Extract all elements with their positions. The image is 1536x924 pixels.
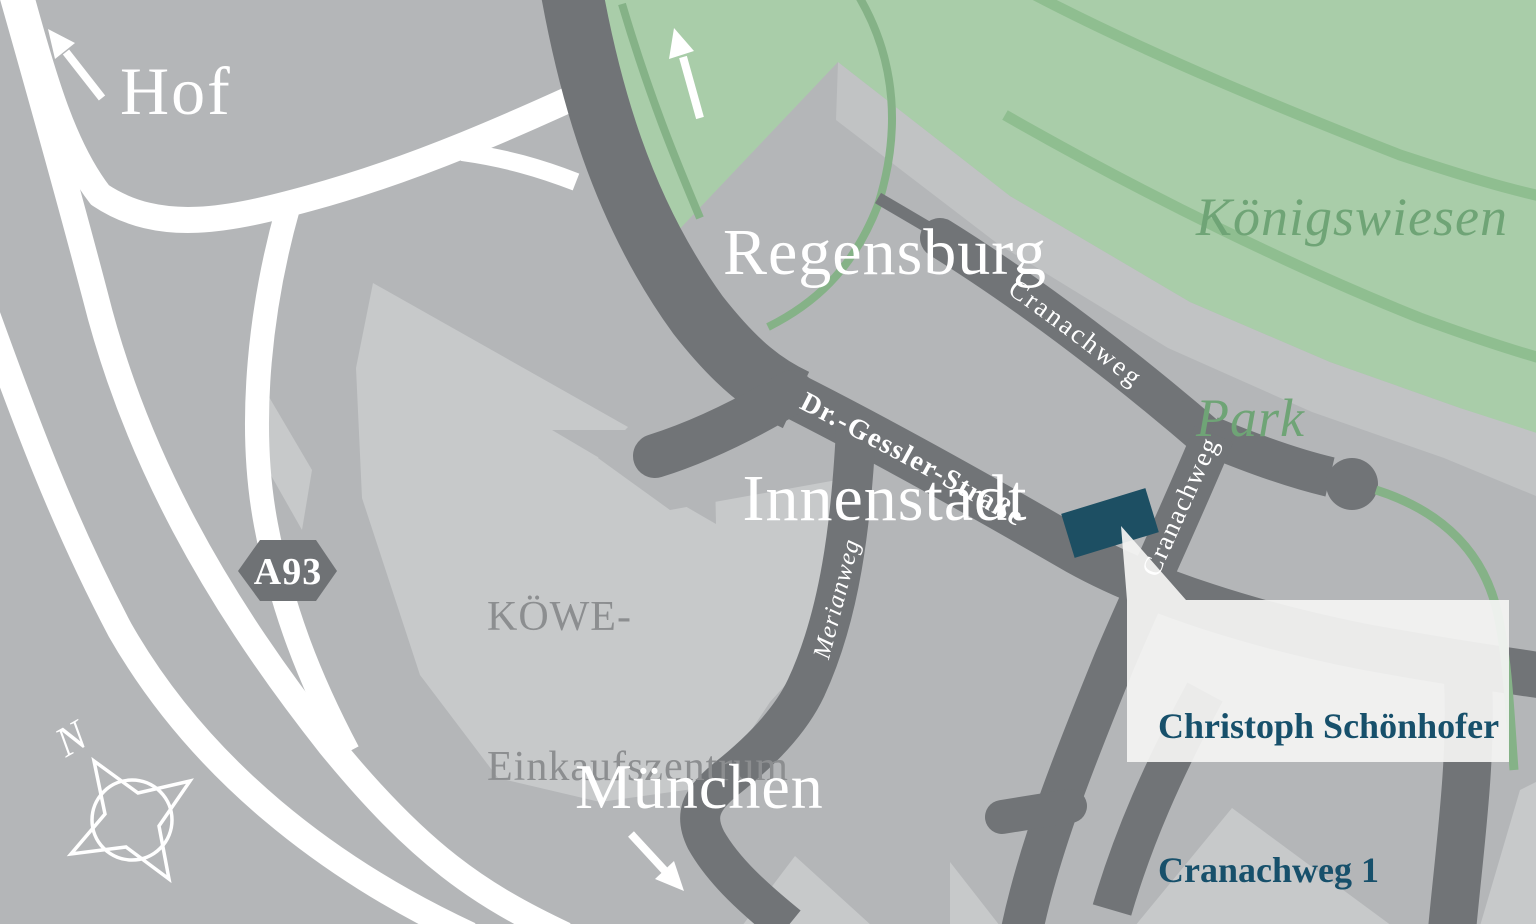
compass-rose: N: [47, 711, 190, 879]
label-regensburg-line1: Regensburg: [700, 212, 1070, 294]
street-culdesac-stub: [1002, 806, 1070, 817]
address-street: Cranachweg 1: [1158, 846, 1499, 894]
label-park-line1: Königswiesen: [1196, 184, 1508, 251]
label-muenchen: München: [575, 750, 824, 824]
motorway-ramp-sweep: [18, 0, 612, 220]
label-koenigswiesen-park: Königswiesen Park: [1196, 50, 1508, 586]
a93-badge: A93: [238, 540, 337, 601]
label-koewe-einkaufszentrum: KÖWE- Einkaufszentrum: [487, 492, 789, 892]
location-map: A93 N Dr: [0, 0, 1536, 924]
building-wedge-bottom: [950, 862, 1000, 924]
compass-north-label: N: [47, 711, 97, 766]
address-name: Christoph Schönhofer: [1158, 702, 1499, 750]
label-hof: Hof: [120, 52, 232, 131]
a93-badge-label: A93: [254, 551, 322, 593]
label-koewe-line1: KÖWE-: [487, 592, 789, 642]
address-callout-text: Christoph Schönhofer Cranachweg 1 93051 …: [1158, 606, 1499, 924]
label-park-line2: Park: [1196, 385, 1508, 452]
motorway-exit-stub: [462, 152, 576, 182]
compass-circle: [92, 780, 172, 860]
